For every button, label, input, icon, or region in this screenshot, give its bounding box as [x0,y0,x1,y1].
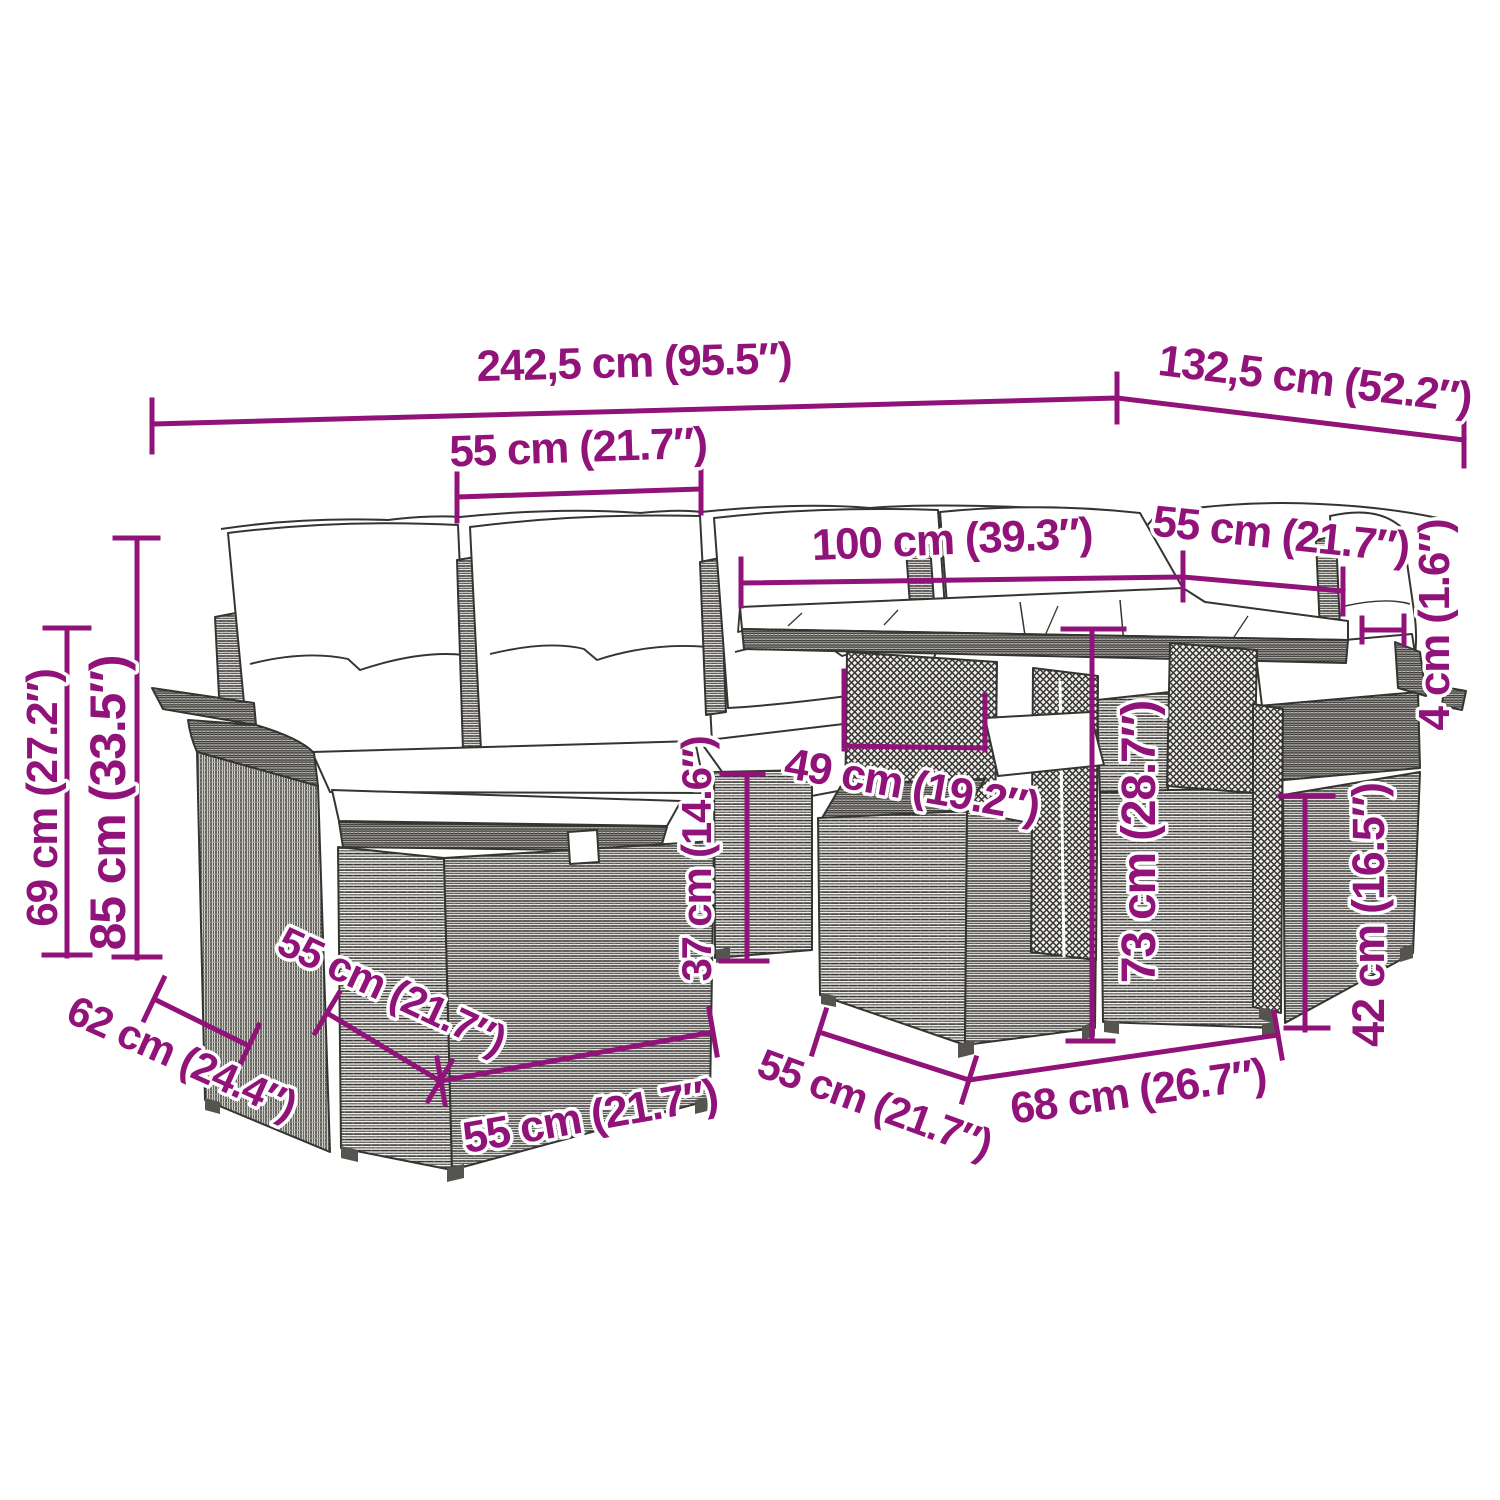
svg-text:4 cm (1.6″): 4 cm (1.6″) [1410,520,1459,731]
svg-text:73 cm (28.7″): 73 cm (28.7″) [1113,701,1166,983]
svg-text:37 cm (14.6″): 37 cm (14.6″) [673,737,720,982]
svg-text:55 cm (21.7″): 55 cm (21.7″) [449,419,708,477]
svg-text:69 cm (27.2″): 69 cm (27.2″) [18,669,67,926]
svg-text:42 cm (16.5″): 42 cm (16.5″) [1343,783,1394,1047]
svg-text:85 cm (33.5″): 85 cm (33.5″) [80,656,136,951]
svg-text:242,5 cm (95.5″): 242,5 cm (95.5″) [476,334,792,391]
